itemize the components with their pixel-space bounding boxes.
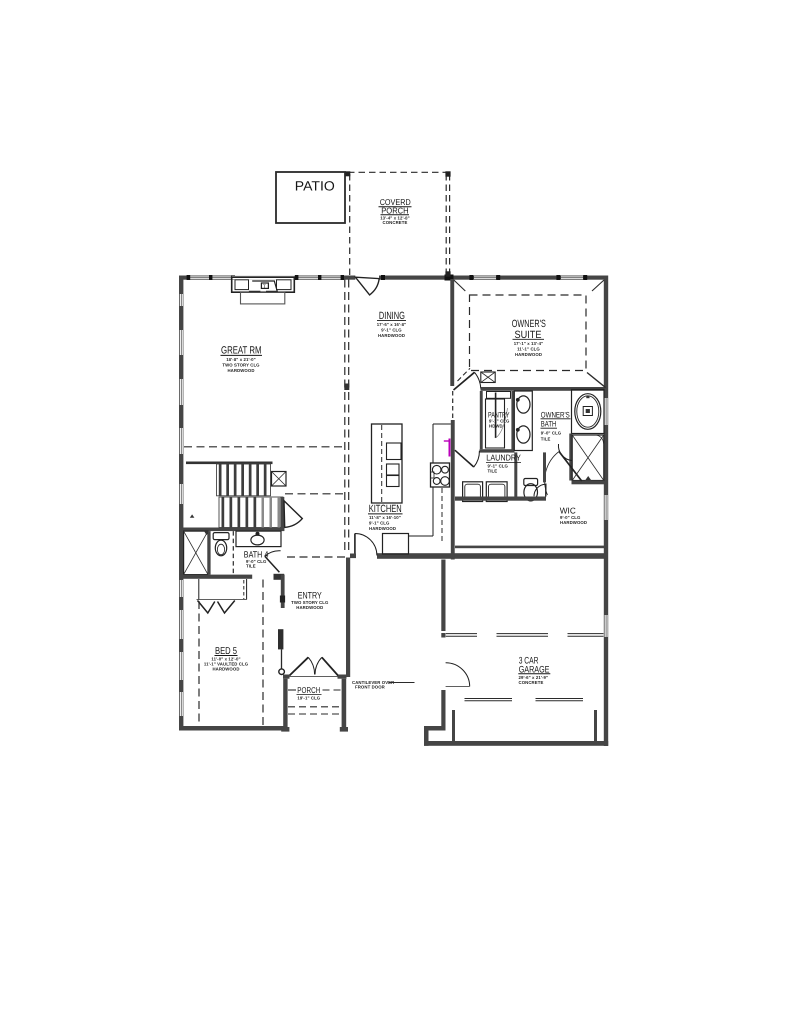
svg-text:9'-1" CLG: 9'-1" CLG [381,328,402,333]
svg-text:WIC: WIC [560,505,576,515]
svg-text:FRONT DOOR: FRONT DOOR [355,685,386,690]
svg-text:T: T [263,284,266,290]
svg-text:KITCHEN: KITCHEN [369,503,402,515]
svg-text:OWNER'S: OWNER'S [541,410,570,419]
svg-text:19'-1" CLG: 19'-1" CLG [297,695,320,700]
svg-text:11'-1" CLG: 11'-1" CLG [517,347,540,352]
svg-text:HARDWOOD: HARDWOOD [560,520,587,525]
svg-text:HARDWOOD: HARDWOOD [369,526,396,531]
svg-text:9'-1" CLG: 9'-1" CLG [369,521,390,526]
svg-text:HARDWOOD: HARDWOOD [378,333,405,338]
svg-text:LAUNDRY: LAUNDRY [486,452,521,462]
svg-text:17'-1" x 13'-4": 17'-1" x 13'-4" [514,341,544,346]
svg-text:BATH: BATH [541,420,557,429]
svg-text:11'-8" x 16'-10": 11'-8" x 16'-10" [369,515,401,520]
svg-text:HARDWOOD: HARDWOOD [515,352,542,357]
svg-text:HARDWOOD: HARDWOOD [296,605,323,610]
svg-text:CONCRETE: CONCRETE [383,220,408,225]
svg-text:TILE: TILE [541,437,551,442]
svg-text:PORCH: PORCH [297,685,320,695]
svg-text:HARDWOOD: HARDWOOD [212,666,239,671]
svg-text:GREAT RM: GREAT RM [221,345,262,357]
svg-text:PATIO: PATIO [295,179,335,194]
svg-text:18'-8" x 21'-0": 18'-8" x 21'-0" [226,357,256,362]
svg-text:9'-0" CLG: 9'-0" CLG [541,431,562,436]
svg-text:TILE: TILE [246,563,256,568]
svg-text:TWO STORY CLG: TWO STORY CLG [222,363,260,368]
svg-text:17'-6" x 16'-8": 17'-6" x 16'-8" [377,322,407,327]
svg-text:HDWD: HDWD [489,424,503,429]
svg-text:CONCRETE: CONCRETE [519,680,544,685]
svg-text:TILE: TILE [488,468,498,473]
svg-text:HARDWOOD: HARDWOOD [227,368,254,373]
